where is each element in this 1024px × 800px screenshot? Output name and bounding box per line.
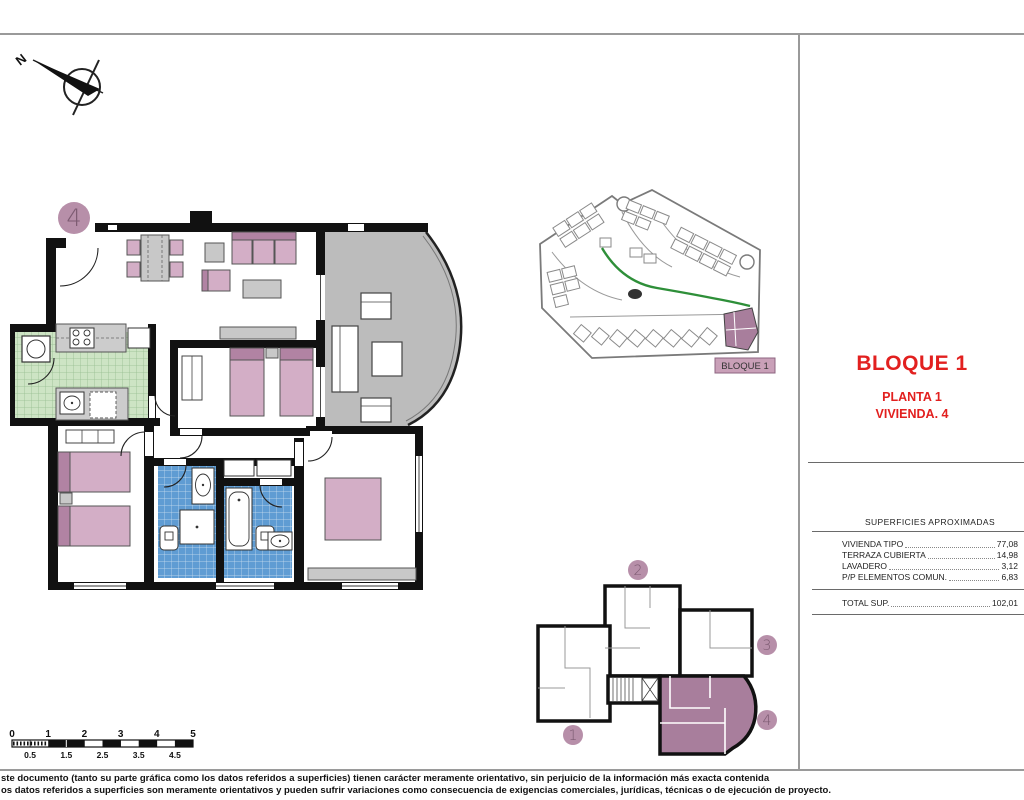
nightstand — [266, 348, 278, 358]
title-block: BLOQUE 1 PLANTA 1 VIVIENDA. 4 — [800, 352, 1024, 421]
key-unit-4-highlighted — [660, 676, 756, 754]
surface-row: TERRAZA CUBIERTA 14,98 — [842, 550, 1018, 561]
key-unit-4-label: 4 — [763, 713, 772, 729]
side-table — [205, 243, 224, 262]
surface-value: 3,12 — [1001, 561, 1018, 572]
surface-value: 14,98 — [997, 550, 1018, 561]
surface-label: P/P ELEMENTOS COMUN. — [842, 572, 947, 583]
compass-rose: N — [0, 30, 140, 140]
scale-minor-4: 4.5 — [169, 750, 181, 760]
surfaces-heading: SUPERFICIES APROXIMADAS — [840, 517, 1020, 527]
site-block-label-text: BLOQUE 1 — [721, 361, 769, 372]
site-plan: BLOQUE 1 — [512, 182, 792, 382]
terrace-sofa — [332, 326, 358, 392]
total-value: 102,01 — [992, 598, 1018, 609]
surface-value: 77,08 — [997, 539, 1018, 550]
dining-chair — [127, 262, 140, 277]
plan-sheet: N — [0, 0, 1024, 800]
bed — [325, 478, 381, 540]
compass-north-label: N — [13, 51, 30, 69]
key-unit-2 — [605, 586, 680, 676]
living-dining-furniture — [127, 232, 296, 339]
surface-label: TERRAZA CUBIERTA — [842, 550, 926, 561]
armchair — [208, 270, 230, 291]
site-block-label: BLOQUE 1 — [715, 358, 775, 373]
surfaces-table: VIVIENDA TIPO 77,08 TERRAZA CUBIERTA 14,… — [842, 539, 1018, 583]
scale-major-5: 5 — [190, 729, 196, 740]
scale-major-1: 1 — [45, 729, 51, 740]
frame-bottom-line — [0, 769, 1024, 771]
total-label: TOTAL SUP. — [842, 598, 889, 609]
key-unit-3 — [680, 610, 752, 676]
unit-number-label: 4 — [66, 204, 81, 232]
surface-row: VIVIENDA TIPO 77,08 — [842, 539, 1018, 550]
scale-bar: 0 1 2 3 4 5 0.5 1.5 2.5 3.5 4.5 — [5, 726, 205, 762]
sofa-back — [232, 232, 296, 240]
terrace-table — [372, 342, 402, 376]
scale-minor-1: 1.5 — [60, 750, 72, 760]
titleblock-divider — [808, 462, 1024, 463]
key-unit-1 — [538, 626, 610, 721]
floor-title: PLANTA 1 — [800, 390, 1024, 404]
wardrobe — [66, 430, 114, 443]
key-unit-2-label: 2 — [634, 563, 643, 579]
bedroom-left — [58, 430, 130, 546]
scale-minor-2: 2.5 — [97, 750, 109, 760]
surface-label: LAVADERO — [842, 561, 887, 572]
frame-top-line — [0, 33, 1024, 35]
wardrobe — [308, 568, 416, 580]
floor-plan: 4 — [10, 190, 490, 595]
sofa — [232, 240, 252, 264]
terrace-chair — [361, 293, 391, 319]
footer-disclaimer: ste documento (tanto su parte gráfica co… — [1, 773, 1023, 797]
surfaces-total: TOTAL SUP. 102,01 — [842, 598, 1018, 609]
key-plan: 2 3 1 4 — [520, 548, 785, 786]
key-unit-3-label: 3 — [763, 638, 772, 654]
surface-label: VIVIENDA TIPO — [842, 539, 903, 550]
surfaces-rule-bottom — [812, 614, 1024, 615]
dining-chair — [127, 240, 140, 255]
surfaces-rule-mid — [812, 589, 1024, 590]
scale-major-4: 4 — [154, 729, 160, 740]
footer-line-1: ste documento (tanto su parte gráfica co… — [1, 773, 1023, 785]
scale-major-2: 2 — [82, 729, 88, 740]
key-unit-1-label: 1 — [569, 728, 578, 744]
tv-unit — [220, 327, 296, 339]
terrace-chair — [361, 398, 391, 422]
scale-minor-0: 0.5 — [24, 750, 36, 760]
unit-number-badge: 4 — [58, 202, 90, 234]
scale-minor-3: 3.5 — [133, 750, 145, 760]
dwelling-title: VIVIENDA. 4 — [800, 407, 1024, 421]
surfaces-rule-top — [812, 531, 1024, 532]
surface-value: 6,83 — [1001, 572, 1018, 583]
nightstand — [60, 493, 72, 504]
scale-major-0: 0 — [9, 729, 15, 740]
dining-chair — [170, 240, 183, 255]
surface-row: P/P ELEMENTOS COMUN. 6,83 — [842, 572, 1018, 583]
bedroom-right — [308, 478, 416, 580]
block-title: BLOQUE 1 — [800, 352, 1024, 376]
footer-line-2: os datos referidos a superficies son mer… — [1, 785, 1023, 797]
coffee-table — [243, 280, 281, 298]
dining-chair — [170, 262, 183, 277]
bedroom-middle — [182, 348, 313, 416]
surface-row: LAVADERO 3,12 — [842, 561, 1018, 572]
site-pond — [628, 289, 642, 299]
dining-table — [141, 235, 169, 281]
scale-major-3: 3 — [118, 729, 124, 740]
